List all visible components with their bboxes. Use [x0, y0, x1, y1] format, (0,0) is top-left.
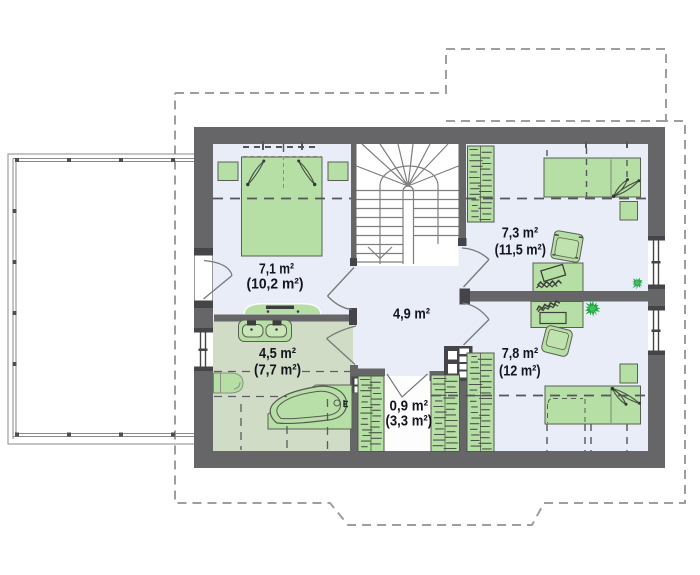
svg-text:(11,5 m²): (11,5 m²) [495, 242, 546, 259]
svg-text:4,5 m²: 4,5 m² [259, 345, 296, 362]
svg-text:7,8 m²: 7,8 m² [502, 345, 538, 362]
svg-text:4,9 m²: 4,9 m² [393, 306, 430, 323]
svg-text:7,3 m²: 7,3 m² [502, 225, 538, 242]
svg-text:(7,7 m²): (7,7 m²) [254, 362, 301, 379]
svg-text:(3,3 m²): (3,3 m²) [386, 413, 433, 430]
svg-text:(12 m²): (12 m²) [499, 363, 541, 380]
svg-text:(10,2 m²): (10,2 m²) [247, 276, 304, 293]
